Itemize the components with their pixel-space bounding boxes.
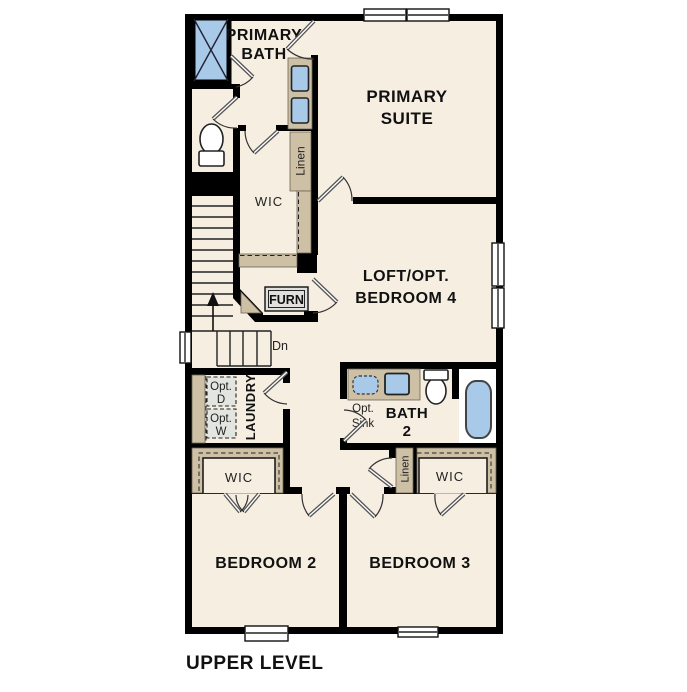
bathtub [466, 381, 491, 438]
sink-1 [292, 66, 309, 91]
room-bedroom2: BEDROOM 2 [215, 555, 316, 572]
primary-bath-label-2: BATH [241, 46, 286, 63]
opt-washer-label-2: W [216, 426, 227, 438]
window-bedroom2 [245, 626, 288, 641]
wic-side-shelf [297, 191, 311, 253]
primary-suite-label-1: PRIMARY [366, 87, 447, 106]
opt-dryer-label-1: Opt. [210, 381, 232, 393]
floorplan-page: Dn PRIMARY BATH PRIMARY SUITE WIC Linen [0, 0, 687, 687]
window-loft-2 [492, 288, 504, 328]
room-bedroom3: BEDROOM 3 [369, 555, 470, 572]
laundry-counter [192, 375, 205, 443]
wic-bedroom3: WIC [417, 448, 496, 493]
wic-bedroom2: WIC [192, 448, 283, 493]
wic-bedroom2-label: WIC [225, 470, 253, 485]
bath2-label-2: 2 [403, 423, 412, 440]
window-loft-1 [492, 243, 504, 286]
water-closet-toilet [199, 124, 224, 166]
bedroom2-label: BEDROOM 2 [215, 555, 316, 572]
furnace-label: FURN [269, 293, 304, 307]
loft-label-1: LOFT/OPT. [363, 268, 449, 285]
window-stair [180, 332, 191, 363]
primary-bath-label-1: PRIMARY [226, 27, 303, 44]
bath2-toilet [424, 370, 448, 404]
shower [193, 18, 229, 82]
bath2-label-1: BATH [386, 405, 429, 422]
stairs-down-label: Dn [272, 339, 288, 353]
primary-vanity [288, 58, 312, 129]
primary-wic-label: WIC [255, 194, 283, 209]
primary-suite-label-2: SUITE [381, 109, 434, 128]
linen-closet-hall: Linen [396, 448, 413, 493]
floorplan-upper-level: Dn PRIMARY BATH PRIMARY SUITE WIC Linen [0, 0, 687, 687]
linen-hall-label: Linen [400, 456, 412, 483]
opt-washer-label-1: Opt. [210, 413, 232, 425]
opt-dryer-label-2: D [217, 394, 225, 406]
bath2-sink [385, 374, 409, 395]
page-title: UPPER LEVEL [186, 653, 323, 674]
laundry-label: LAUNDRY [243, 374, 258, 441]
optional-sink [353, 376, 378, 394]
sink-2 [292, 98, 309, 123]
window-bedroom3 [398, 627, 438, 637]
window-suite-1 [364, 9, 406, 21]
bedroom3-label: BEDROOM 3 [369, 555, 470, 572]
linen-upper-label: Linen [294, 146, 308, 175]
loft-label-2: BEDROOM 4 [355, 290, 456, 307]
opt-sink-label-1: Opt. [352, 403, 374, 415]
wic-bedroom3-label: WIC [436, 469, 464, 484]
window-suite-2 [407, 9, 449, 21]
